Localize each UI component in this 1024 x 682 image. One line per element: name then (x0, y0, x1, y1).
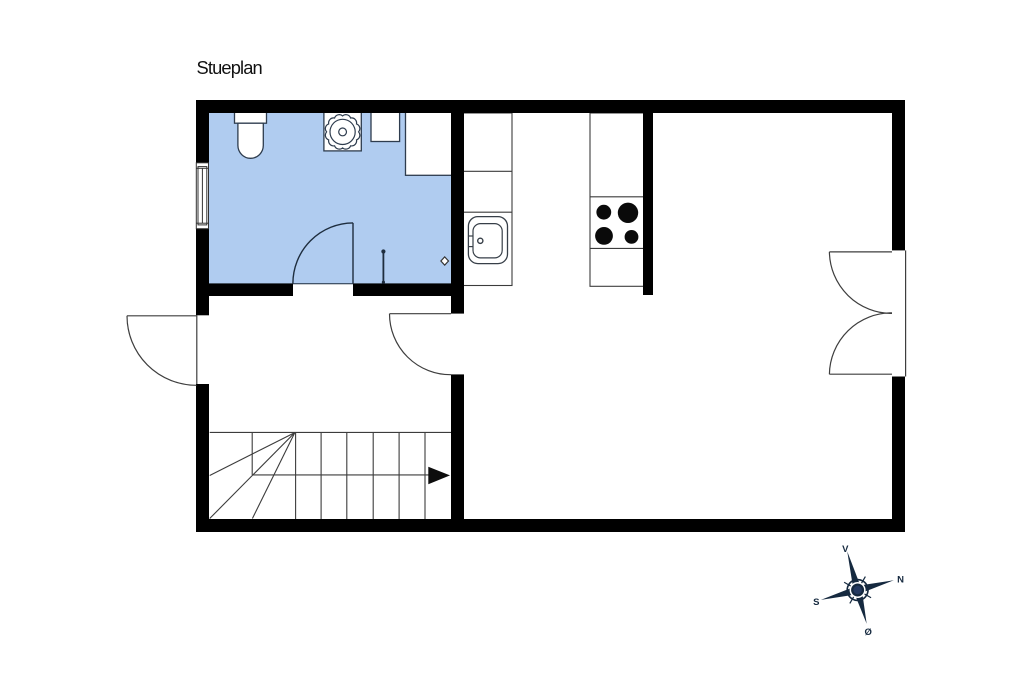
svg-text:Ø: Ø (865, 627, 872, 638)
svg-text:V: V (842, 544, 849, 555)
svg-text:Stueplan: Stueplan (197, 57, 262, 78)
svg-text:S: S (813, 597, 819, 608)
svg-text:N: N (897, 574, 904, 585)
